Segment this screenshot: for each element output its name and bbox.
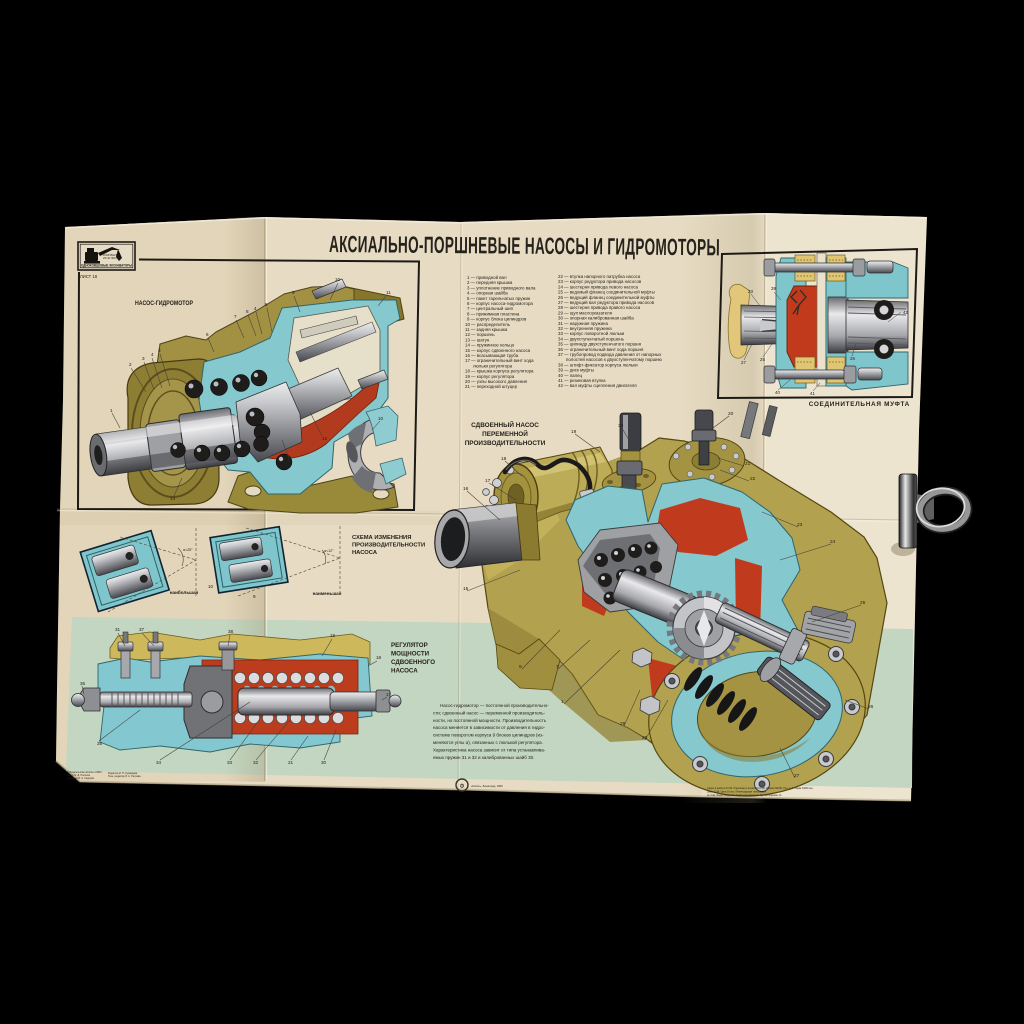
svg-text:ЛИСТ 18: ЛИСТ 18 xyxy=(80,274,98,279)
svg-text:42: 42 xyxy=(903,310,908,315)
svg-text:Художник В. А. Сидоров: Художник В. А. Сидоров xyxy=(67,777,95,780)
svg-text:25: 25 xyxy=(760,357,765,362)
svg-text:17: 17 xyxy=(485,478,491,484)
svg-text:19: 19 xyxy=(571,429,577,435)
svg-text:емых пружин 31 и 32 и калибров: емых пружин 31 и 32 и калиброванных шайб… xyxy=(433,754,534,760)
svg-text:СХЕМА ИЗМЕНЕНИЯ: СХЕМА ИЗМЕНЕНИЯ xyxy=(352,535,411,541)
svg-text:18: 18 xyxy=(501,456,507,462)
svg-text:14: 14 xyxy=(170,496,176,501)
svg-text:3: 3 xyxy=(142,356,145,361)
svg-text:α=12°: α=12° xyxy=(324,549,334,553)
svg-text:9: 9 xyxy=(253,594,256,599)
svg-text:17: 17 xyxy=(386,692,392,697)
svg-text:12: 12 xyxy=(322,436,328,441)
svg-text:5: 5 xyxy=(265,302,268,307)
svg-text:6: 6 xyxy=(206,332,209,337)
svg-text:39: 39 xyxy=(771,286,776,291)
svg-text:ПРОИЗВОДИТЕЛЬНОСТИ: ПРОИЗВОДИТЕЛЬНОСТИ xyxy=(465,440,546,447)
svg-text:9: 9 xyxy=(519,664,522,670)
svg-text:27: 27 xyxy=(741,360,746,365)
svg-text:13: 13 xyxy=(287,458,293,463)
svg-text:АКСИАЛЬНО-ПОРШНЕВЫЕ НАСОСЫ И Г: АКСИАЛЬНО-ПОРШНЕВЫЕ НАСОСЫ И ГИДРОМОТОРЫ xyxy=(329,231,720,260)
svg-text:сти; сдвоенный насос — перемен: сти; сдвоенный насос — переменной произв… xyxy=(433,709,546,715)
svg-text:3: 3 xyxy=(158,348,161,353)
svg-text:29: 29 xyxy=(620,721,626,727)
svg-text:40: 40 xyxy=(775,390,780,395)
svg-text:1: 1 xyxy=(561,699,564,705)
svg-text:меняются углы α), связанных с: меняются углы α), связанных с люлькой ре… xyxy=(433,739,543,745)
svg-text:21: 21 xyxy=(288,760,294,765)
svg-text:21: 21 xyxy=(745,461,751,467)
svg-text:28: 28 xyxy=(642,735,648,741)
svg-text:ности, но постоянной мощности.: ности, но постоянной мощности. Производи… xyxy=(433,717,547,723)
svg-text:19: 19 xyxy=(330,633,336,638)
svg-text:10: 10 xyxy=(378,416,384,421)
svg-text:«Колос», Ленинград, 1969: «Колос», Ленинград, 1969 xyxy=(471,784,503,788)
svg-text:Ф: Ф xyxy=(460,784,465,790)
svg-text:26: 26 xyxy=(850,356,855,361)
svg-text:СДВОЕННОГО: СДВОЕННОГО xyxy=(391,659,435,666)
svg-text:9: 9 xyxy=(292,290,295,295)
svg-text:18: 18 xyxy=(376,655,382,660)
svg-text:№ 3 им. Ивана Федорова Главпол: № 3 им. Ивана Федорова Главполиграфпрома… xyxy=(707,794,782,797)
svg-text:10: 10 xyxy=(208,584,214,589)
svg-text:8: 8 xyxy=(246,309,249,314)
svg-text:23: 23 xyxy=(748,289,753,294)
svg-text:4: 4 xyxy=(254,306,257,311)
svg-text:7: 7 xyxy=(234,314,237,319)
svg-text:25: 25 xyxy=(860,600,866,606)
svg-text:41: 41 xyxy=(810,391,815,396)
svg-text:7: 7 xyxy=(556,664,559,670)
svg-text:СОЕДИНИТЕЛЬНАЯ МУФТА: СОЕДИНИТЕЛЬНАЯ МУФТА xyxy=(809,401,910,408)
svg-text:37: 37 xyxy=(139,627,145,632)
svg-text:Насос-гидромотор — постоянной: Насос-гидромотор — постоянной производит… xyxy=(440,702,549,708)
svg-text:ОДНОКОВШОВЫЕ ЭКСКАВАТОРЫ: ОДНОКОВШОВЫЕ ЭКСКАВАТОРЫ xyxy=(81,264,132,268)
svg-text:24: 24 xyxy=(830,539,836,545)
svg-text:30: 30 xyxy=(618,423,624,429)
svg-text:НАСОСА: НАСОСА xyxy=(391,668,418,675)
svg-text:16: 16 xyxy=(463,486,469,492)
svg-text:НАСОСА: НАСОСА xyxy=(352,550,378,556)
svg-text:ПРОИЗВОДИТЕЛЬНОСТИ: ПРОИЗВОДИТЕЛЬНОСТИ xyxy=(352,543,425,549)
svg-text:38: 38 xyxy=(228,629,234,634)
svg-text:ИЗ 40 ЛИСТОВ: ИЗ 40 ЛИСТОВ xyxy=(103,256,122,260)
svg-text:наименьшая: наименьшая xyxy=(313,591,342,596)
svg-text:2: 2 xyxy=(129,362,132,367)
svg-text:10: 10 xyxy=(335,277,341,282)
svg-text:ПЕРЕМЕННОЙ: ПЕРЕМЕННОЙ xyxy=(482,429,528,438)
svg-text:27: 27 xyxy=(794,773,800,779)
svg-text:30: 30 xyxy=(321,760,327,765)
svg-text:РЕГУЛЯТОР: РЕГУЛЯТОР xyxy=(391,642,428,649)
svg-text:20: 20 xyxy=(728,411,734,417)
svg-text:15: 15 xyxy=(463,586,469,592)
svg-text:4: 4 xyxy=(151,352,154,357)
svg-text:21 — переходной штуцер: 21 — переходной штуцер xyxy=(465,384,518,389)
svg-text:42 — вал муфты сцепления двига: 42 — вал муфты сцепления двигателя xyxy=(558,383,637,388)
svg-text:Характеристика насоса зависит: Характеристика насоса зависит от типа ус… xyxy=(433,747,546,752)
svg-text:НАСОС-ГИДРОМОТОР: НАСОС-ГИДРОМОТОР xyxy=(135,301,193,307)
svg-text:наибольшая: наибольшая xyxy=(170,589,199,595)
svg-text:32: 32 xyxy=(253,760,259,765)
svg-text:11: 11 xyxy=(386,290,391,295)
svg-text:31: 31 xyxy=(115,627,121,632)
svg-text:33: 33 xyxy=(227,760,233,765)
svg-text:23: 23 xyxy=(797,522,803,528)
svg-text:22: 22 xyxy=(750,476,756,482)
svg-text:26: 26 xyxy=(868,704,874,710)
svg-text:насоса меняется в зависимости: насоса меняется в зависимости от давлени… xyxy=(433,725,546,730)
svg-text:СДВОЕННЫЙ НАСОС: СДВОЕННЫЙ НАСОС xyxy=(471,420,539,429)
svg-text:системе поворотом корпуса 9 бл: системе поворотом корпуса 9 блоков цилин… xyxy=(433,733,544,738)
svg-text:МОЩНОСТИ: МОЩНОСТИ xyxy=(391,651,430,658)
svg-text:35: 35 xyxy=(97,741,103,746)
svg-text:34: 34 xyxy=(156,760,162,765)
svg-text:α=25°: α=25° xyxy=(183,548,193,552)
svg-text:Техн. редактор И. А. Петрова: Техн. редактор И. А. Петрова xyxy=(108,775,141,778)
svg-text:36: 36 xyxy=(80,681,86,686)
svg-text:1: 1 xyxy=(110,408,113,413)
